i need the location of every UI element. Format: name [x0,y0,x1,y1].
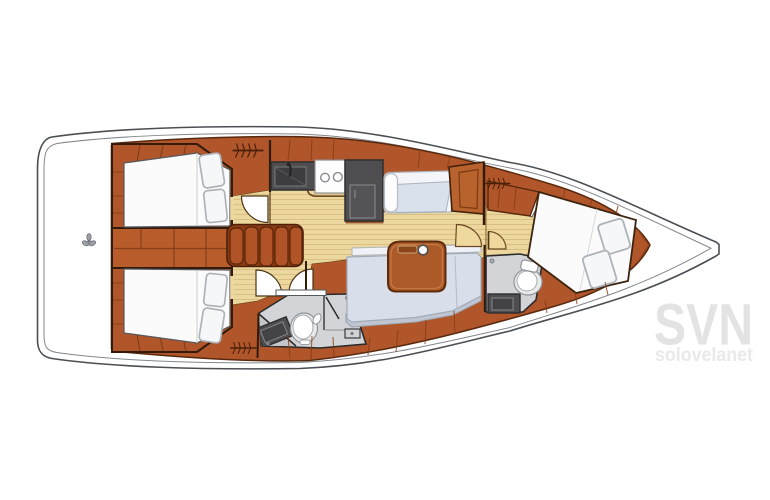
svg-text:solovelanet: solovelanet [655,345,754,366]
